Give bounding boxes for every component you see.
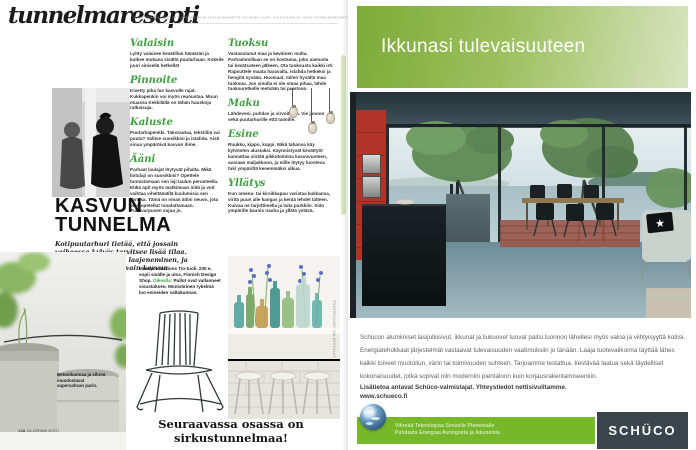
section-body: Lyhty valaisee kevätillan hämärän ja kul…: [130, 51, 224, 69]
globe-earth-icon: [360, 404, 386, 430]
pendant-cord: [292, 88, 293, 106]
schueco-ad-page: Ikkunasi tulevaisuuteen: [348, 0, 696, 450]
photo-credit-vertical: TUOTEKUVAT: VALMISTAJAT: [332, 300, 336, 358]
section-heading: Kaluste: [130, 117, 224, 128]
next-issue-teaser: Seuraavassa osassa on sirkustunnelmaa!: [114, 417, 348, 445]
star-icon: ★: [655, 217, 666, 230]
slogan-line1: Vihreää Teknologiaa Siniselle Planeetall…: [395, 423, 500, 430]
bulb-socket: [329, 111, 333, 114]
section-body: Kun omena- tai kirsikkapuu varistaa kukk…: [228, 191, 334, 215]
globe-cloud: [364, 410, 374, 414]
columnist-portrait-photo: [52, 88, 130, 197]
bulb-socket: [311, 121, 315, 124]
section-body: Ruukku, kippo, kuppi. Mikä tahansa käy k…: [228, 142, 334, 172]
section-heading: Yllätys: [228, 178, 334, 189]
concrete-pots-photo: [0, 252, 126, 450]
schueco-logo-box: SCHÜCO: [597, 412, 688, 449]
schueco-logo: SCHÜCO: [608, 423, 676, 438]
pots-caption: Betoniharmaa ja vihreä muodostavat super…: [57, 372, 111, 389]
glass-bottles-photo: [228, 256, 340, 419]
pendant-bulb-icon: [308, 122, 317, 134]
pots-graphic: [0, 252, 126, 450]
pendant-bulb-icon: [289, 106, 298, 118]
ad-header-banner: Ikkunasi tulevaisuuteen: [357, 6, 688, 88]
bottles-graphic: [228, 256, 340, 419]
section-yllatys: Yllätys Kun omena- tai kirsikkapuu varis…: [228, 178, 334, 215]
pendant-cord: [329, 88, 330, 112]
section-heading: Pinnoite: [130, 75, 224, 86]
column-tagline: SISUSTUSARKKITEHTI JA TUNNELMOINNIN TAIT…: [133, 16, 351, 20]
section-kaluste: Kaluste Puutarhapenkki. Takorautaa, teks…: [130, 117, 224, 148]
caption-lead: Oikealla:: [153, 278, 173, 283]
section-heading: Valaisin: [130, 38, 224, 49]
pendant-bulb-icon: [326, 112, 335, 124]
section-tuoksu: Tuoksu Vastasulanut maa ja keväinen mult…: [228, 38, 334, 92]
lake-house-photo: ★: [350, 92, 691, 318]
furniture-graphic: ★: [350, 92, 691, 318]
portrait-graphic: [52, 88, 130, 197]
section-body: Kivetty piha luo kasvulle rajat. Kukkape…: [130, 88, 224, 112]
section-heading: Ääni: [130, 154, 224, 165]
globe-cloud: [366, 422, 373, 425]
magazine-name: GLORIAN KOTI: [27, 428, 59, 433]
product-caption: Massproductions Tio-tuoli, 230 e, sopii …: [139, 266, 221, 296]
pendant-bulbs-photo: [283, 88, 341, 144]
section-body: Puutarhapenkki. Takorautaa, tekstiiliä v…: [130, 130, 224, 148]
header-rule: [133, 23, 338, 24]
section-heading: Tuoksu: [228, 38, 334, 49]
slogan-line2: Puhdasta Energiaa Auringosta ja Ikkunois…: [395, 430, 500, 437]
page-folio: 138 GLORIAN KOTI: [18, 428, 59, 433]
feature-title: KASVUN TUNNELMA: [55, 197, 171, 235]
ad-body-copy: Schücon alumiiniset lasijulkisivut, ikku…: [360, 331, 686, 383]
slogan-text: Vihreää Teknologiaa Siniselle Planeetall…: [395, 423, 500, 437]
wire-chair-illustration: [126, 308, 234, 420]
section-valaisin: Valaisin Lyhty valaisee kevätillan hämär…: [130, 38, 224, 69]
section-body: Vastasulanut maa ja keväinen multa. Parh…: [228, 51, 334, 92]
ad-headline: Ikkunasi tulevaisuuteen: [381, 36, 585, 58]
wire-chair-graphic: [126, 308, 234, 420]
recipe-column-1: Valaisin Lyhty valaisee kevätillan hämär…: [130, 38, 224, 220]
green-slogan-bar: Vihreää Teknologiaa Siniselle Planeetall…: [357, 417, 595, 444]
section-pinnoite: Pinnoite Kivetty piha luo kasvulle rajat…: [130, 75, 224, 112]
ad-website: www.schueco.fi: [360, 393, 407, 400]
magazine-spread: tunnelmaresepti SISUSTUSARKKITEHTI JA TU…: [0, 0, 696, 450]
bulb-socket: [292, 105, 296, 108]
ad-contact-line: Lisätietoa antavat Schüco-valmistajat. Y…: [360, 384, 686, 392]
feature-title-line2: TUNNELMA: [55, 216, 171, 235]
pendant-cord: [311, 88, 312, 122]
page-number: 138: [18, 428, 26, 433]
globe-cloud: [371, 417, 380, 420]
